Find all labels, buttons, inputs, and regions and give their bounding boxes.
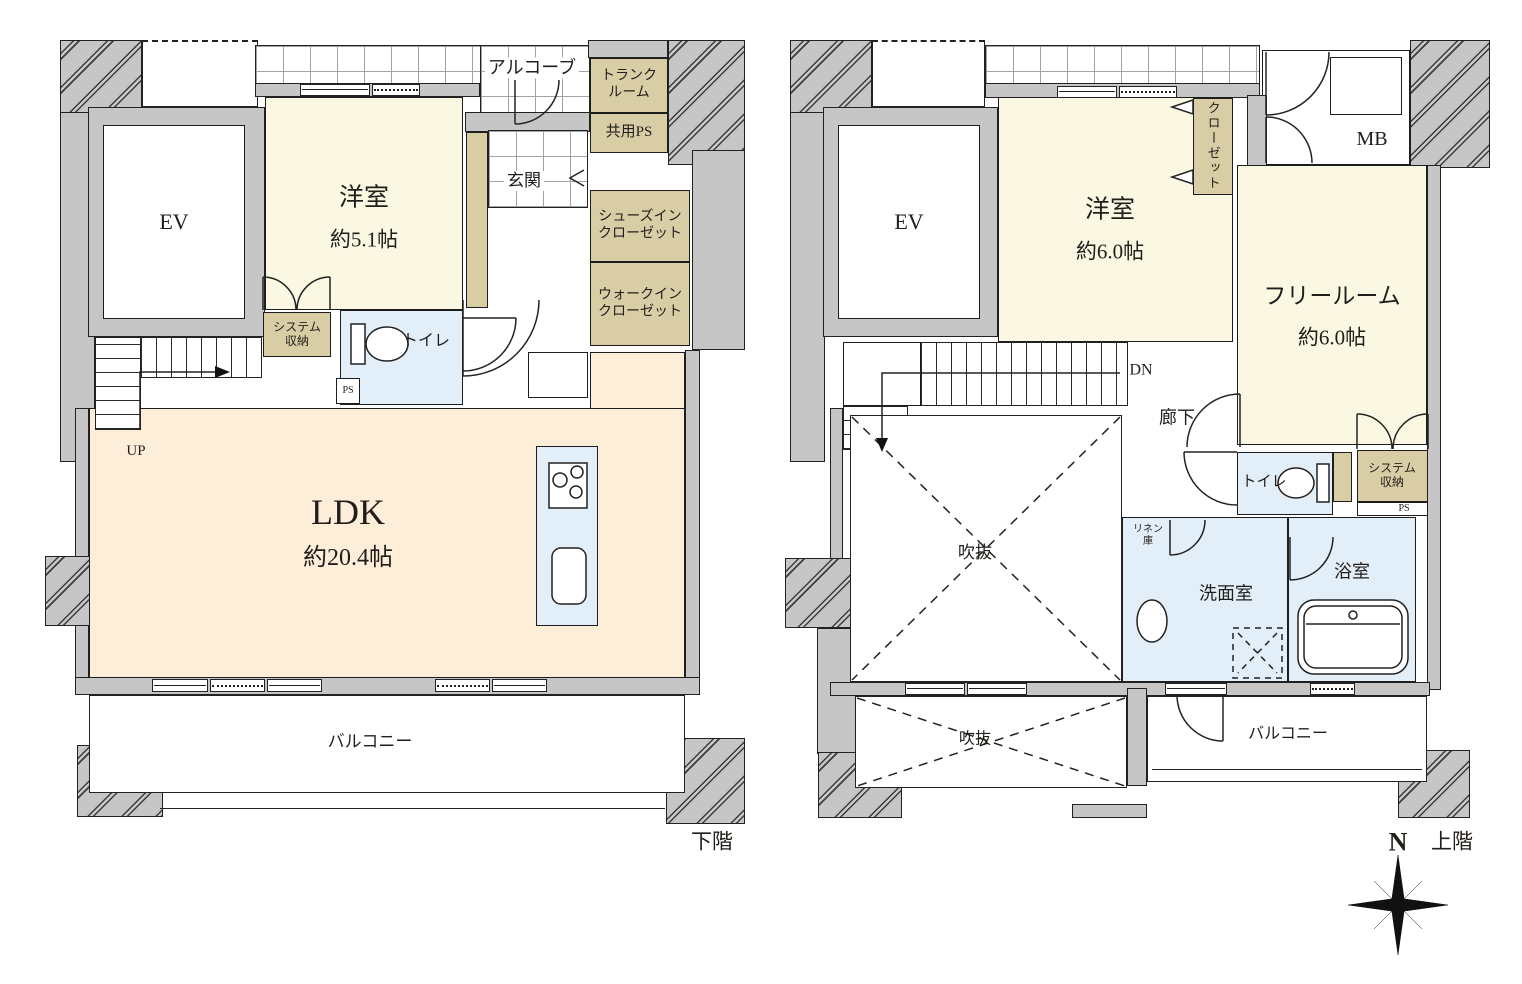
mb-duct — [1330, 57, 1402, 115]
wall-divider — [1127, 688, 1147, 786]
trunk-room-label: トランク ルーム — [601, 68, 657, 101]
balcony-edge-line — [160, 808, 665, 809]
door-arc-toilet-lower — [463, 318, 516, 371]
wall — [830, 408, 843, 560]
window — [1310, 683, 1355, 695]
western-room-label: 洋室 — [339, 183, 389, 213]
linen-label: リネン 庫 — [1133, 524, 1163, 548]
kitchen-counter — [536, 446, 598, 626]
wall — [685, 350, 700, 688]
western-room-size: 約5.1帖 — [330, 228, 398, 253]
western-room-label: 洋室 — [1085, 195, 1135, 225]
free-room-size: 約6.0帖 — [1298, 326, 1366, 351]
window — [492, 679, 547, 692]
window — [967, 683, 1027, 695]
balcony-edge-line — [1152, 769, 1422, 770]
shared-ps-label: 共用PS — [606, 124, 653, 142]
ps-duct-upper — [1357, 502, 1428, 516]
hallway-label: 廊下 — [1159, 407, 1195, 428]
void-lower-label: 吹抜 — [959, 731, 991, 750]
floorplan-canvas: EV アルコーブ トランク ルーム 共用PS 玄関 シューズイン クローゼット … — [0, 0, 1522, 984]
wall — [790, 112, 825, 462]
compass-rose — [1348, 855, 1448, 955]
wall-notch — [872, 40, 985, 107]
wall — [692, 150, 745, 350]
mb-label: MB — [1356, 128, 1387, 152]
toilet-label: トイレ — [1241, 474, 1286, 492]
void-label: 吹抜 — [958, 543, 992, 563]
window — [435, 679, 490, 692]
ldk-size: 約20.4帖 — [303, 544, 393, 572]
toilet-side-cabinet — [1333, 452, 1352, 502]
wall-step — [1072, 804, 1147, 818]
entrance-label: 玄関 — [504, 171, 544, 191]
stairs-up-lower-flight — [95, 337, 141, 430]
window — [1119, 86, 1177, 98]
system-storage-label: システム 収納 — [273, 320, 321, 348]
balcony-label: バルコニー — [328, 732, 413, 752]
upper-floor-title: 上階 — [1431, 830, 1473, 855]
system-storage-label: システム 収納 — [1368, 461, 1416, 489]
ps-label: PS — [1398, 503, 1409, 515]
lower-floor-title: 下階 — [691, 830, 733, 855]
wall-pillar — [785, 558, 857, 628]
bathroom-label: 浴室 — [1334, 561, 1370, 582]
window — [300, 84, 370, 96]
room-ldk-ext — [590, 352, 685, 412]
entrance-tiles — [488, 130, 588, 208]
hall-storage — [528, 352, 588, 398]
wall-corner — [1410, 40, 1490, 168]
wall — [588, 40, 668, 58]
window — [905, 683, 965, 695]
stairs-landing — [843, 342, 921, 406]
ps-label: PS — [342, 385, 353, 397]
wall — [75, 408, 89, 688]
walk-in-closet-label: ウォークイン クローゼット — [598, 287, 682, 320]
up-label: UP — [126, 443, 145, 461]
compass-north-label: N — [1389, 828, 1408, 859]
wall — [1247, 95, 1267, 167]
free-room-label: フリールーム — [1263, 282, 1400, 309]
washroom-label: 洗面室 — [1199, 583, 1253, 604]
western-room-size: 約6.0帖 — [1076, 240, 1144, 265]
wall — [1427, 165, 1441, 690]
wall — [465, 112, 590, 132]
shoes-in-closet-label: シューズイン クローゼット — [598, 209, 682, 242]
window — [152, 679, 208, 692]
window — [1057, 86, 1117, 98]
wall-notch — [142, 40, 258, 107]
toilet-label: トイレ — [402, 333, 450, 352]
shoe-cabinet — [466, 132, 488, 308]
ev-label: EV — [894, 209, 923, 235]
window — [372, 84, 420, 96]
window — [267, 679, 322, 692]
door-arc-toilet-upper — [1184, 452, 1237, 505]
dn-label: DN — [1129, 362, 1152, 381]
closet-label: クローゼット — [1205, 101, 1220, 191]
ev-label: EV — [159, 209, 188, 235]
stairs-down — [920, 342, 1128, 406]
bathroom — [1288, 517, 1416, 682]
balcony-label: バルコニー — [1248, 726, 1328, 745]
wall-corner — [668, 40, 745, 165]
alcove-label: アルコーブ — [485, 57, 579, 78]
stairs-up — [140, 337, 262, 378]
ldk-label: LDK — [311, 491, 385, 533]
window — [1165, 683, 1227, 695]
window — [210, 679, 265, 692]
